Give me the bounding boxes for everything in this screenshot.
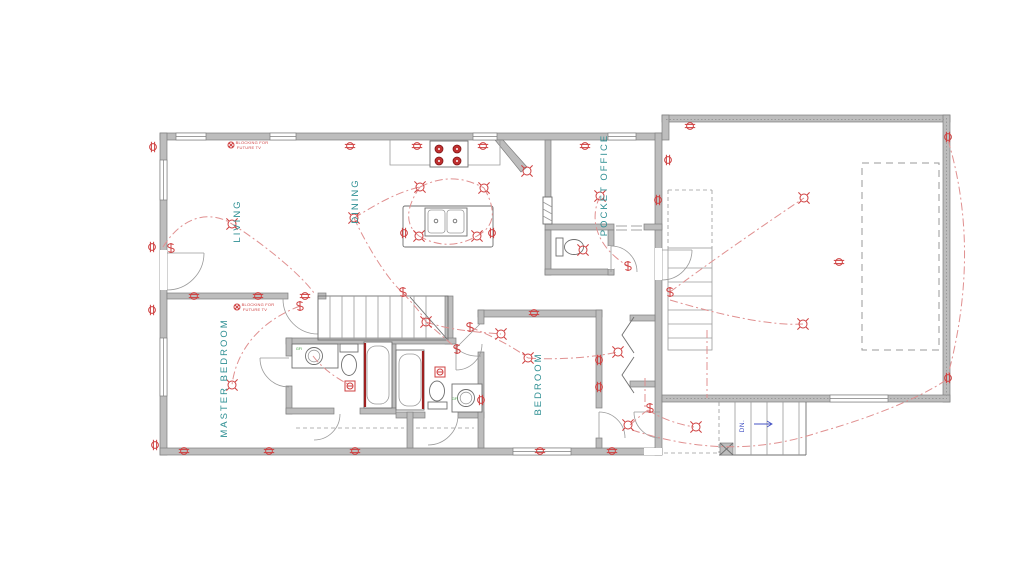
duplex-outlet-icon: [300, 293, 310, 300]
duplex-outlet-icon: [665, 155, 672, 165]
switch-icon: [168, 243, 174, 253]
duplex-outlet-icon: [412, 143, 422, 150]
duplex-outlet-icon: [685, 123, 695, 130]
main-staircase: [318, 296, 448, 340]
gfi-label: GFI: [452, 397, 458, 401]
boxed-outlet-icon: [435, 367, 445, 377]
blocking-tv-note: BLOCKING FOR FUTURE TV: [234, 302, 274, 312]
exterior-stairs: DN.: [664, 402, 806, 455]
duplex-outlet-icon: [149, 305, 156, 315]
pantry-pocket-door: [543, 197, 552, 224]
switch-icon: [467, 322, 473, 332]
ceiling-light-icon: [521, 165, 532, 176]
bathtub: [364, 342, 392, 408]
switch-icon: [454, 344, 460, 354]
window: [160, 338, 167, 396]
exterior-walls: [160, 115, 950, 455]
toilet: [340, 344, 358, 376]
master-bath-door: [260, 358, 289, 387]
master-bathroom: [292, 342, 392, 408]
garage-staircase: [668, 190, 712, 350]
duplex-outlet-icon: [150, 142, 157, 152]
duplex-outlet-icon: [149, 242, 156, 252]
front-door: [167, 253, 204, 290]
room-label-bedroom: BEDROOM: [533, 352, 544, 415]
ceiling-light-icon: [622, 419, 633, 430]
switch-icon: [400, 287, 406, 297]
stove: [430, 141, 468, 167]
switch-icon: [297, 301, 303, 311]
kitchen-island: [403, 206, 493, 247]
duplex-outlet-icon: [478, 143, 488, 150]
blocking-tv-note: BLOCKING FOR FUTURE TV: [228, 140, 268, 150]
garage-storage-dashed-area: [862, 163, 939, 350]
switch-icon: [647, 403, 653, 413]
gfi-label: GFI: [296, 347, 302, 351]
bathtub: [396, 350, 424, 410]
duplex-outlet-icon: [152, 440, 159, 450]
room-label-pocket-office: POCKET OFFICE: [599, 134, 610, 236]
svg-text:FUTURE TV: FUTURE TV: [243, 307, 267, 312]
window: [830, 395, 888, 402]
ceiling-light-icon: [690, 421, 701, 432]
window: [270, 133, 296, 140]
floor-plan-page: DN.: [0, 0, 1024, 582]
svg-text:FUTURE TV: FUTURE TV: [237, 145, 261, 150]
duplex-outlet-icon: [580, 143, 590, 150]
boxed-outlet-icon: [345, 381, 355, 391]
ceiling-light-icon: [612, 346, 623, 357]
down-label: DN.: [739, 420, 746, 433]
hall-bathroom: [396, 350, 482, 412]
window: [608, 133, 636, 140]
wc-door: [611, 246, 637, 272]
switch-icon: [625, 261, 631, 271]
window: [473, 133, 497, 140]
hall-closet-door: [428, 415, 458, 445]
duplex-outlet-icon: [345, 143, 355, 150]
floor-plan-drawing: DN.: [0, 0, 1024, 582]
direction-arrow-icon: [754, 421, 772, 427]
window: [176, 133, 206, 140]
duplex-outlet-icon: [834, 259, 844, 266]
room-label-living: LIVING: [232, 199, 243, 242]
room-label-master-bedroom: MASTER BEDROOM: [219, 318, 230, 437]
post: [720, 443, 733, 455]
bedroom-hall-door: [599, 412, 625, 438]
garage-door: [662, 250, 692, 280]
master-closet-door: [314, 414, 340, 440]
window: [160, 160, 167, 200]
toilet: [428, 381, 447, 409]
room-label-dining: DINING: [350, 178, 361, 223]
